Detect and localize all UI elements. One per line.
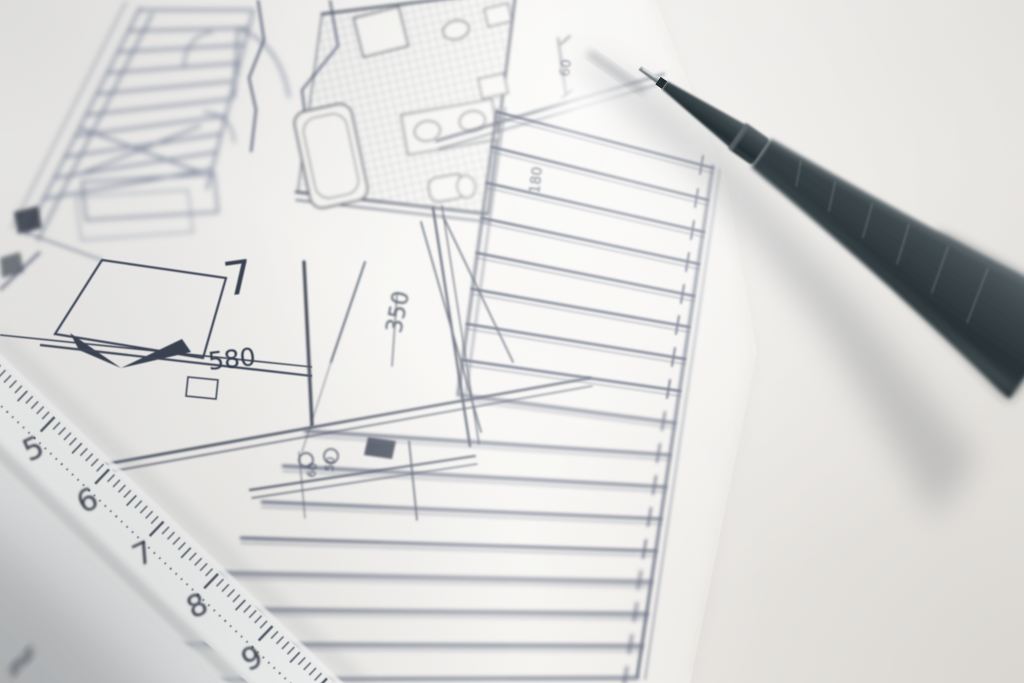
vignette bbox=[0, 0, 1024, 683]
photo-canvas: 7 580 350 60 180 60 50 5 6 7 8 9 bbox=[0, 0, 1024, 683]
photo: 7 580 350 60 180 60 50 5 6 7 8 9 bbox=[0, 0, 1024, 683]
